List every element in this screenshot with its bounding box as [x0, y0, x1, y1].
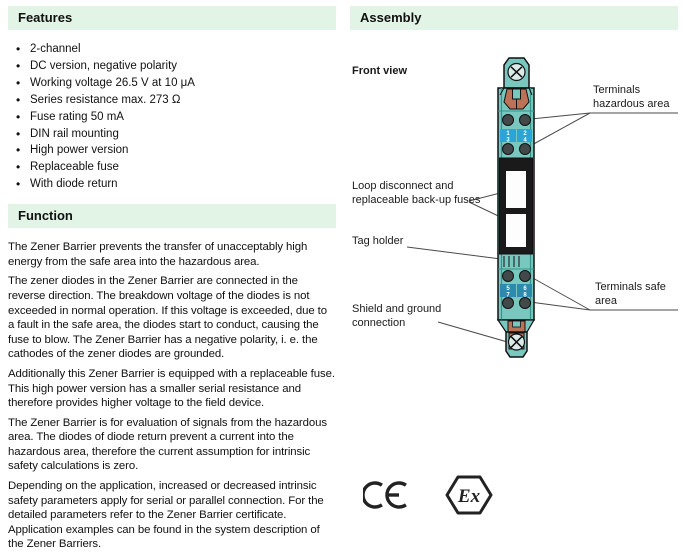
fuse-holder-block — [500, 158, 533, 254]
fuse-window — [506, 171, 526, 208]
features-header: Features — [8, 6, 336, 30]
terminal-screw — [520, 298, 531, 309]
function-paragraph: Additionally this Zener Barrier is equip… — [8, 367, 336, 411]
terminal-screw — [503, 144, 514, 155]
feature-item: 2-channel — [8, 41, 336, 58]
datasheet-page: Features 2-channel DC version, negative … — [0, 0, 683, 560]
feature-item: Series resistance max. 273 Ω — [8, 92, 336, 109]
loop-disconnect-label: Loop disconnect and replaceable back-up … — [352, 180, 486, 207]
feature-item: Replaceable fuse — [8, 159, 336, 176]
terminal-screw — [503, 271, 514, 282]
feature-item: With diode return — [8, 176, 336, 193]
feature-item: DC version, negative polarity — [8, 58, 336, 75]
assembly-header: Assembly — [350, 6, 678, 30]
feature-item: DIN rail mounting — [8, 126, 336, 143]
function-paragraph: The Zener Barrier prevents the transfer … — [8, 240, 336, 269]
ce-mark-icon — [363, 480, 413, 510]
terminal-screw — [520, 271, 531, 282]
shield-ground-label: Shield and ground connection — [352, 303, 464, 330]
terminal-screw — [520, 144, 531, 155]
feature-item: High power version — [8, 142, 336, 159]
left-column: Features 2-channel DC version, negative … — [8, 6, 336, 557]
features-title: Features — [18, 10, 72, 25]
function-paragraph: The Zener Barrier is for evaluation of s… — [8, 416, 336, 474]
function-title: Function — [18, 208, 73, 223]
ex-mark-text: Ex — [457, 486, 481, 507]
feature-item: Working voltage 26.5 V at 10 μA — [8, 75, 336, 92]
fuse-window — [506, 214, 526, 247]
function-paragraph: The zener diodes in the Zener Barrier ar… — [8, 274, 336, 362]
tag-holder-label: Tag holder — [352, 235, 472, 249]
terminals-hazardous-label: Terminals hazardous area — [593, 84, 683, 111]
terminals-safe-label: Terminals safe area — [595, 281, 683, 308]
atex-ex-mark-icon: Ex — [444, 473, 494, 517]
features-list: 2-channel DC version, negative polarity … — [8, 41, 336, 193]
function-text: The Zener Barrier prevents the transfer … — [8, 240, 336, 552]
right-column: Assembly Front view — [350, 6, 678, 554]
terminal-screw — [503, 298, 514, 309]
terminal-screw — [503, 115, 514, 126]
function-header: Function — [8, 204, 336, 228]
top-ground-screw — [504, 58, 529, 88]
feature-item: Fuse rating 50 mA — [8, 109, 336, 126]
terminal-screw — [520, 115, 531, 126]
shield-ground-connection — [498, 320, 534, 357]
function-paragraph: Depending on the application, increased … — [8, 479, 336, 552]
assembly-title: Assembly — [360, 10, 421, 25]
